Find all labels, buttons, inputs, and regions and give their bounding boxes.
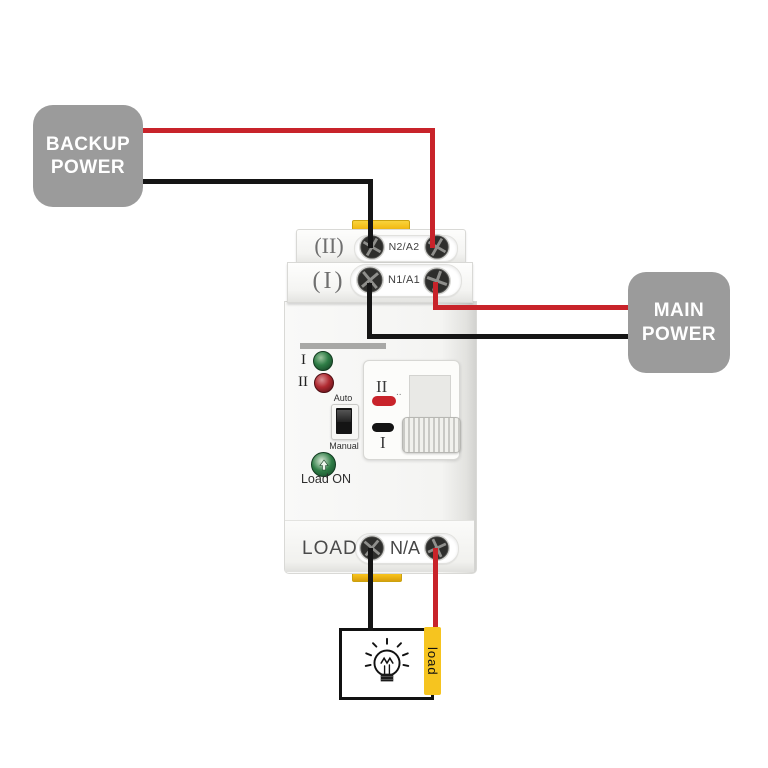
toggle-slider — [336, 408, 352, 434]
load-tag-label: load — [425, 647, 440, 676]
wire-load-neutral-vertical — [368, 548, 373, 631]
vent-stripe — [300, 343, 386, 349]
arrow-up-icon — [318, 459, 330, 471]
breaker-panel: II .. I — [363, 360, 460, 460]
load-terminal-label: LOAD — [302, 538, 352, 560]
terminal-label-n2a2: N2/A2 — [384, 241, 424, 253]
position-1-indicator — [372, 423, 394, 432]
toggle-knob — [337, 410, 351, 422]
breaker-position-2-label: II — [376, 377, 387, 397]
toggle-switch — [331, 404, 359, 440]
screw-terminal-icon — [423, 233, 451, 261]
position-2-indicator — [372, 396, 396, 406]
load-tag: load — [424, 627, 441, 695]
main-power-label-line2: POWER — [642, 323, 716, 346]
wire-main-neutral-horizontal — [367, 334, 628, 339]
light-bulb-icon — [358, 636, 416, 692]
manual-label: Manual — [323, 441, 365, 451]
led1-label: I — [301, 352, 306, 369]
breaker-handle-knob — [402, 417, 461, 453]
row2-roman-label: (II) — [303, 231, 355, 260]
load-on-label: Load ON — [296, 472, 356, 486]
main-power-label-line1: MAIN — [654, 299, 705, 322]
backup-power-box: BACKUP POWER — [33, 105, 143, 207]
breaker-position-1-label: I — [380, 433, 386, 453]
wire-main-neutral-vertical — [367, 283, 372, 339]
led2-label: II — [298, 374, 308, 391]
na-terminal-label: N/A — [386, 538, 424, 559]
backup-power-label-line2: POWER — [51, 156, 125, 179]
wire-main-live-horizontal — [433, 305, 628, 310]
terminal-label-n1a1: N1/A1 — [383, 274, 425, 286]
backup-power-label-line1: BACKUP — [46, 133, 130, 156]
auto-label: Auto — [328, 393, 358, 403]
wiring-diagram: BACKUP POWER MAIN POWER (II) N2/A2 (I) N… — [0, 0, 768, 768]
main-power-box: MAIN POWER — [628, 272, 730, 373]
wire-backup-neutral-horizontal — [143, 179, 373, 184]
row1-roman-label: (I) — [303, 266, 355, 297]
handle-slot — [409, 375, 451, 423]
wire-load-live-vertical — [433, 548, 438, 628]
wire-backup-neutral-vertical — [368, 179, 373, 248]
wire-backup-live-vertical — [430, 128, 435, 248]
led-indicator-green — [313, 351, 333, 371]
breaker-dots: .. — [396, 387, 402, 398]
led-indicator-red — [314, 373, 334, 393]
wire-backup-live-horizontal — [143, 128, 435, 133]
load-device-box — [339, 628, 434, 700]
